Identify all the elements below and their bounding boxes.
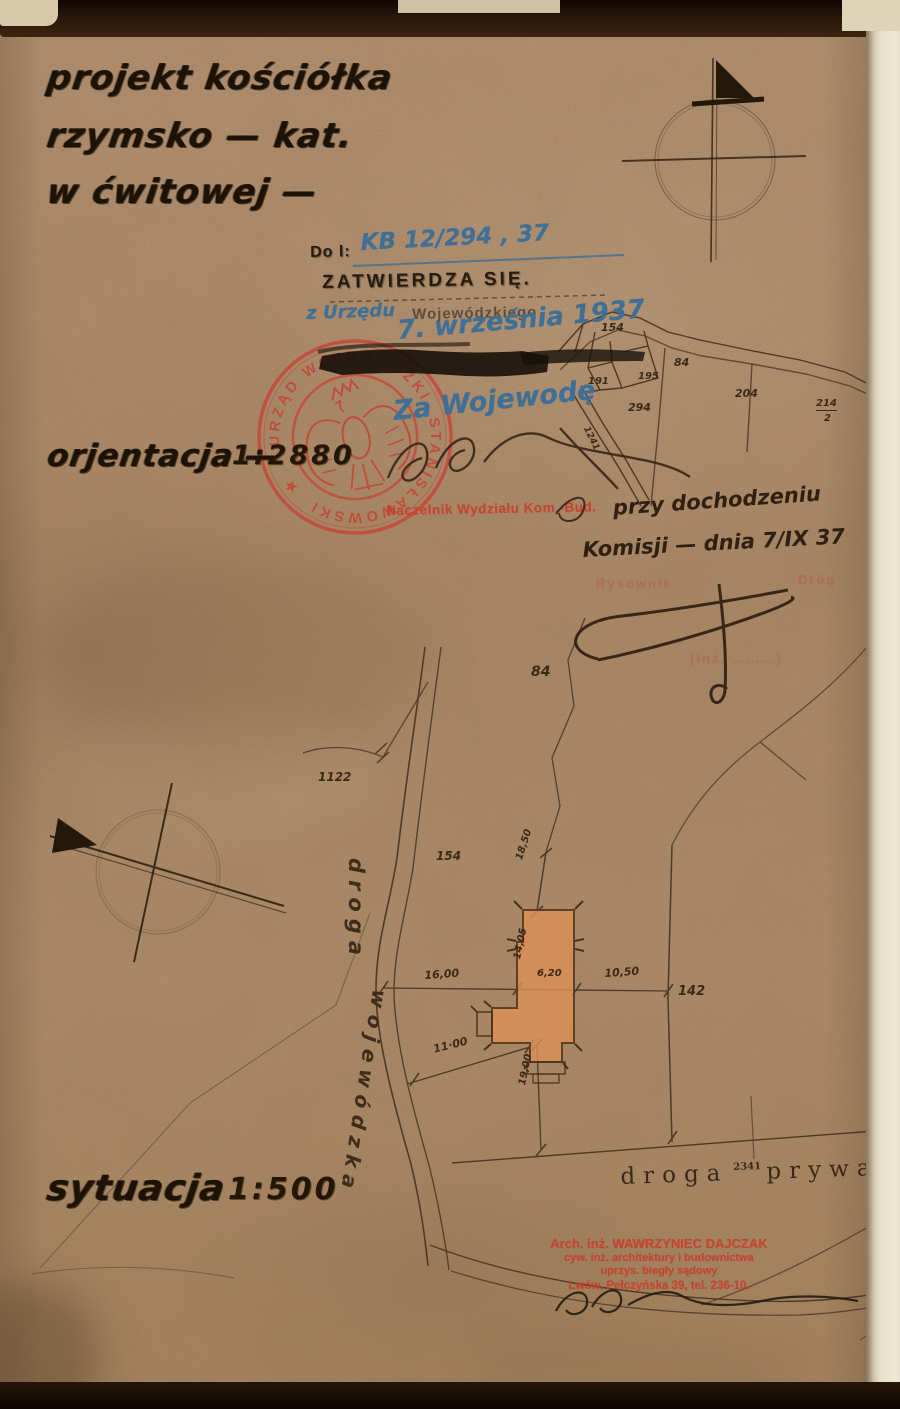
canvas-strip-right	[866, 0, 900, 1409]
light-stain	[60, 710, 380, 840]
bottom-binding-edge	[0, 1382, 900, 1409]
scanned-drawing-page: URZĄD WOJEWÓDZKI STANISŁAWOWSKI ★	[0, 0, 900, 1409]
canvas-patch-top-right	[842, 0, 900, 31]
kraft-paper-sheet	[0, 30, 866, 1384]
canvas-patch-top-middle	[398, 0, 560, 13]
canvas-patch-top-left	[0, 0, 58, 26]
